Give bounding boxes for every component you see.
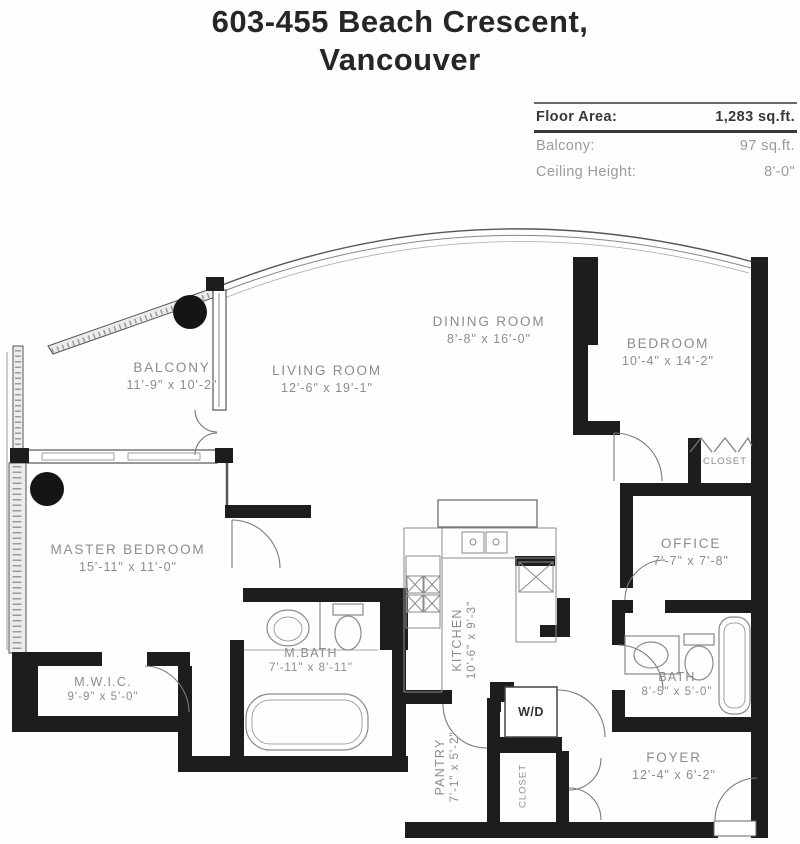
floor-plan-drawing: [0, 0, 800, 844]
dining-room-dims: 8'-8" x 16'-0": [433, 332, 546, 346]
foyer-name: FOYER: [632, 750, 716, 765]
bedroom-name: BEDROOM: [622, 336, 714, 351]
room-label-bedroom: BEDROOM 10'-4" x 14'-2": [622, 336, 714, 368]
room-label-dining-room: DINING ROOM 8'-8" x 16'-0": [433, 314, 546, 346]
bath-dims: 8'-5" x 5'-0": [642, 686, 713, 698]
master-bedroom-name: MASTER BEDROOM: [51, 542, 206, 557]
bath-fixtures: [625, 617, 750, 714]
foyer-dims: 12'-4" x 6'-2": [632, 768, 716, 782]
foyer-closet-name: CLOSET: [518, 764, 529, 808]
room-label-master-bath: M.BATH 7'-11" x 8'-11": [269, 646, 353, 674]
kitchen-dims: 10'-6" x 9'-3": [466, 601, 478, 679]
living-room-name: LIVING ROOM: [272, 363, 382, 378]
balcony-dims: 11'-9" x 10'-2": [127, 378, 218, 392]
master-bath-name: M.BATH: [269, 646, 353, 660]
living-room-dims: 12'-6" x 19'-1": [272, 381, 382, 395]
room-label-foyer-closet: CLOSET: [518, 764, 529, 808]
master-bedroom-dims: 15'-11" x 11'-0": [51, 560, 206, 574]
room-label-mwic: M.W.I.C. 9'-9" x 5'-0": [68, 675, 139, 703]
room-label-balcony: BALCONY 11'-9" x 10'-2": [127, 360, 218, 392]
bedroom-dims: 10'-4" x 14'-2": [622, 354, 714, 368]
mwic-dims: 9'-9" x 5'-0": [68, 691, 139, 703]
kitchen-name: KITCHEN: [450, 601, 464, 679]
office-dims: 7'-7" x 7'-8": [653, 554, 729, 568]
mwic-name: M.W.I.C.: [68, 675, 139, 689]
bath-name: BATH: [642, 670, 713, 684]
room-label-office: OFFICE 7'-7" x 7'-8": [653, 536, 729, 568]
room-label-foyer: FOYER 12'-4" x 6'-2": [632, 750, 716, 782]
balcony-name: BALCONY: [127, 360, 218, 375]
master-bath-dims: 7'-11" x 8'-11": [269, 662, 353, 674]
room-label-master-bedroom: MASTER BEDROOM 15'-11" x 11'-0": [51, 542, 206, 574]
bedroom-closet-name: CLOSET: [703, 456, 747, 467]
office-name: OFFICE: [653, 536, 729, 551]
kitchen-fixtures: [404, 500, 556, 692]
room-label-bedroom-closet: CLOSET: [703, 456, 747, 467]
room-label-pantry: PANTRY 7'-1" x 5'-2": [433, 732, 461, 803]
pantry-dims: 7'-1" x 5'-2": [449, 732, 461, 803]
dining-room-name: DINING ROOM: [433, 314, 546, 329]
window-walls: [9, 290, 227, 653]
room-label-kitchen: KITCHEN 10'-6" x 9'-3": [450, 601, 478, 679]
master-bath-fixtures: [244, 602, 378, 750]
room-label-bath: BATH 8'-5" x 5'-0": [642, 670, 713, 698]
balcony-walls: [7, 287, 221, 650]
curved-window-wall: [217, 229, 753, 299]
pantry-name: PANTRY: [433, 732, 447, 803]
room-label-living-room: LIVING ROOM 12'-6" x 19'-1": [272, 363, 382, 395]
washer-dryer-label: W/D: [518, 705, 544, 719]
